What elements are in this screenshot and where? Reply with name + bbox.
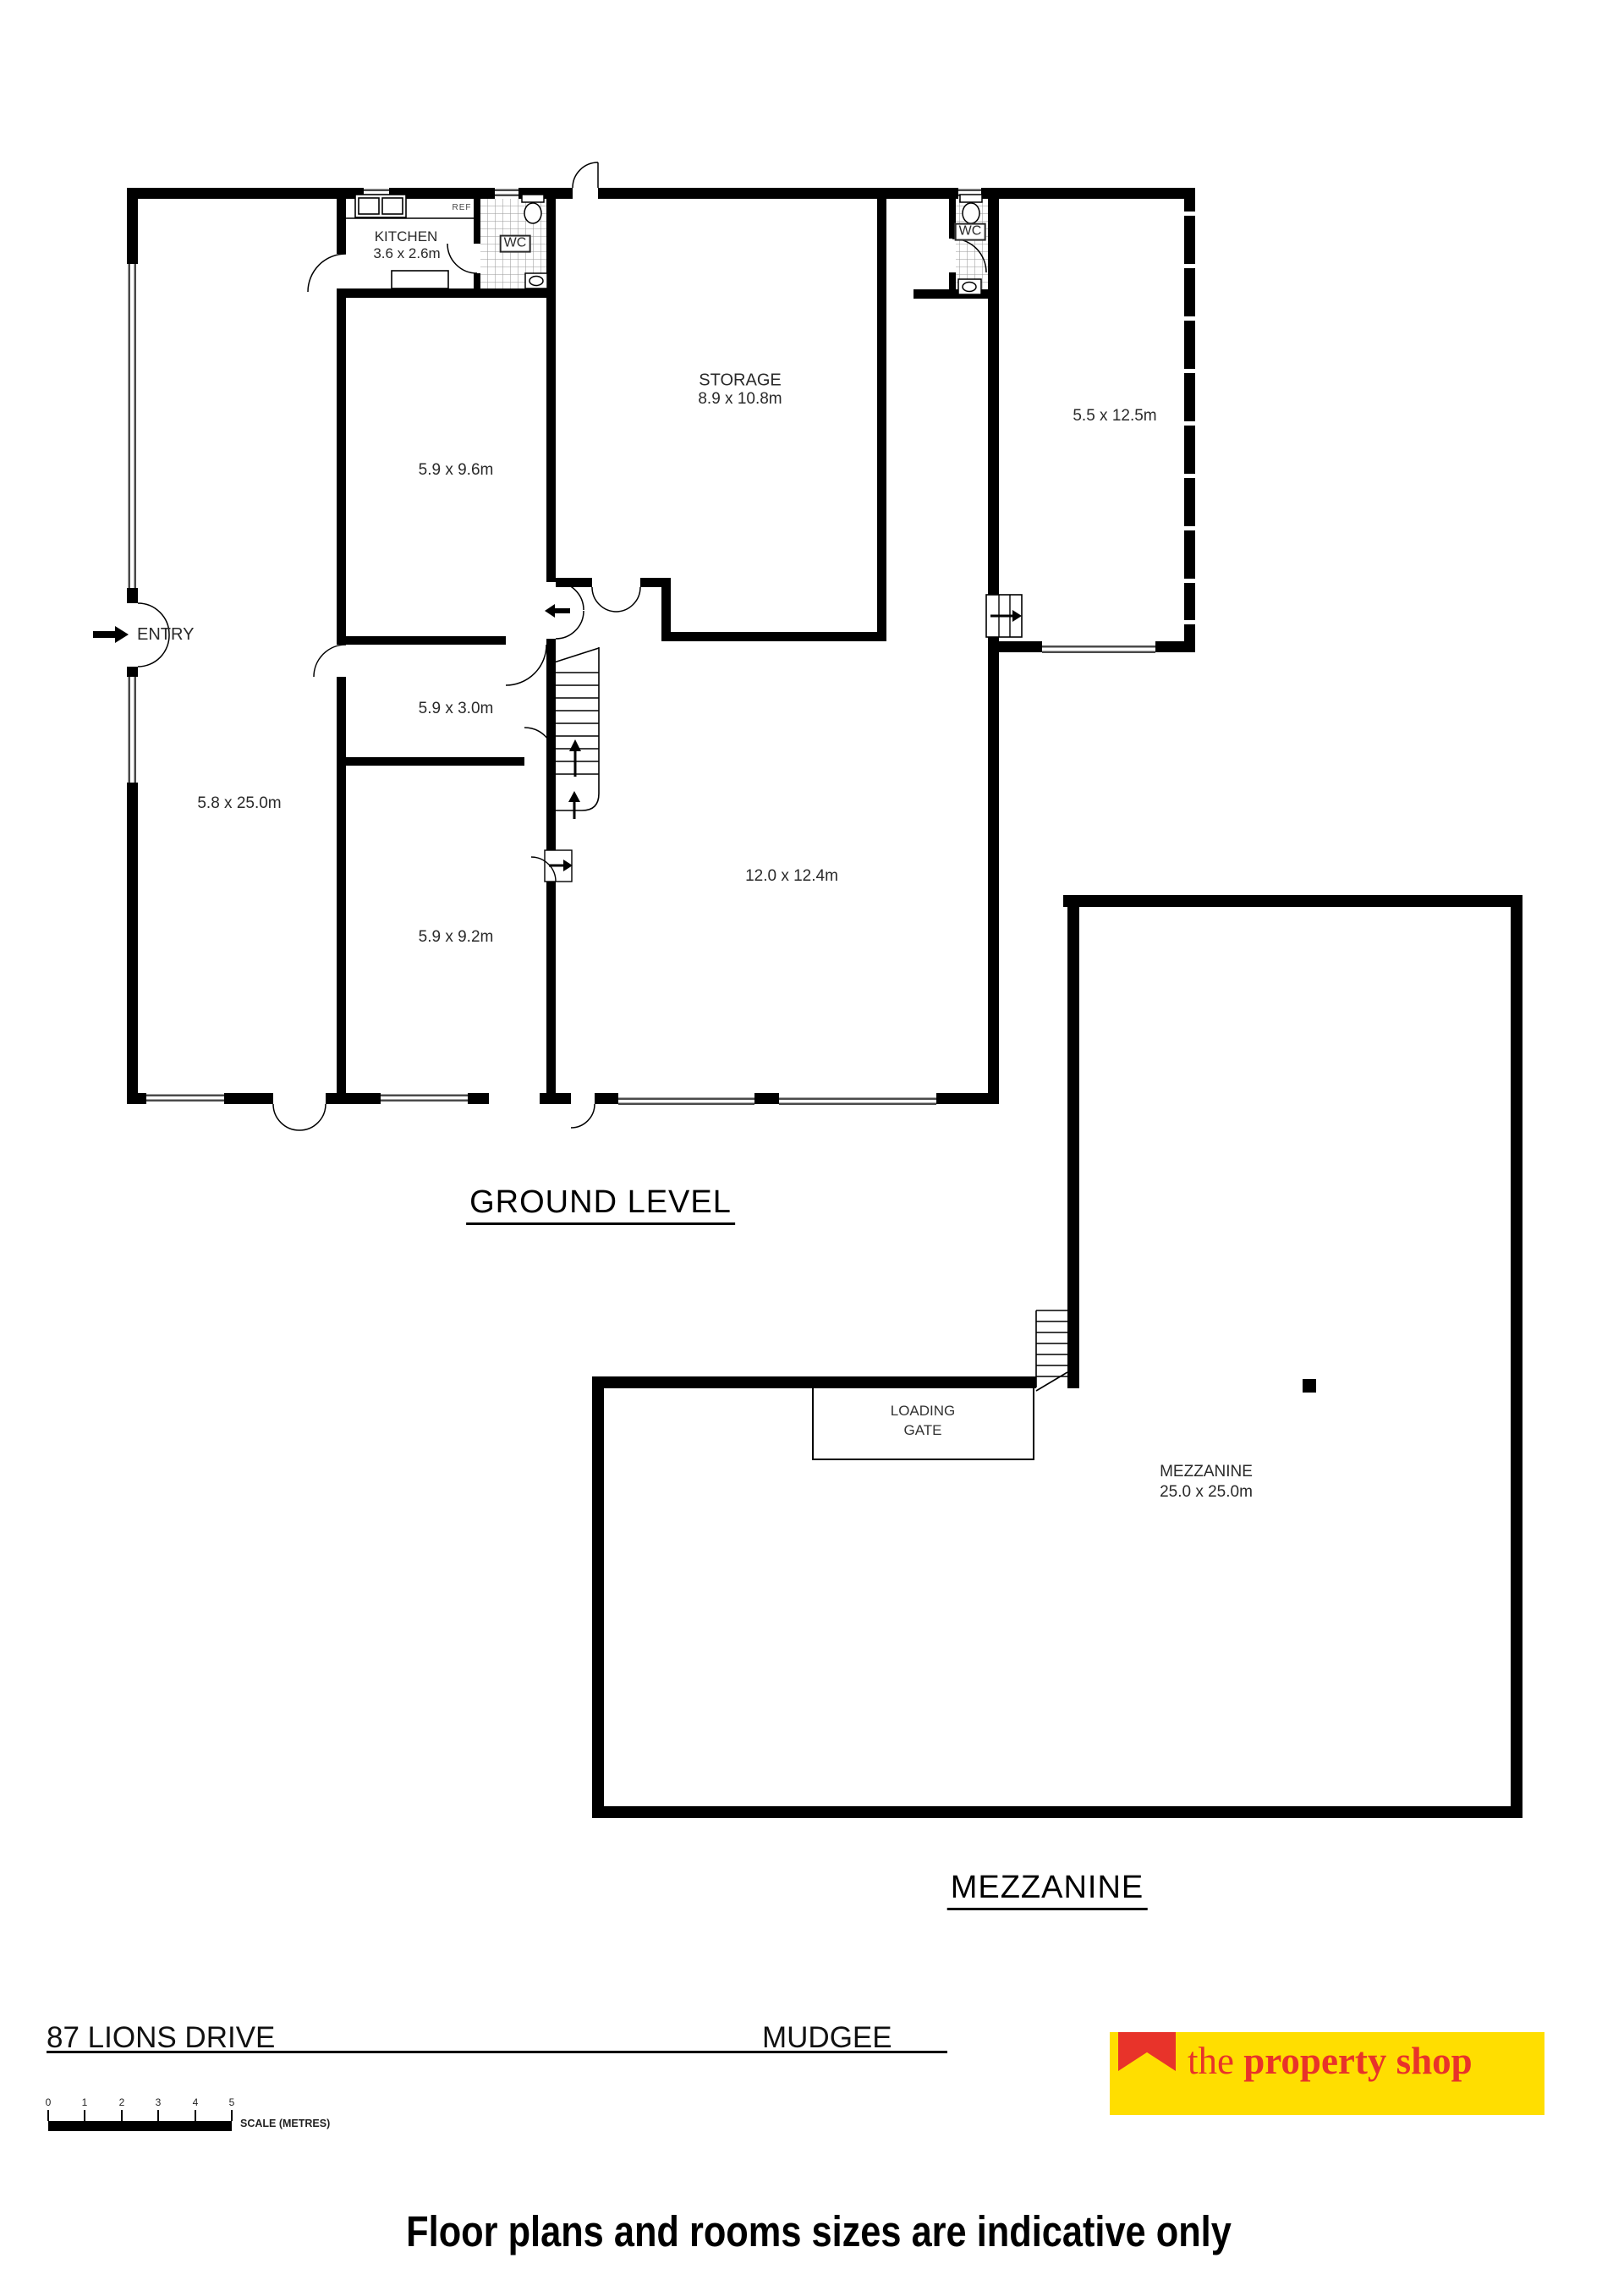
scale-number-1: 1 <box>82 2096 88 2108</box>
address-text: 87 LIONS DRIVE <box>47 2023 275 2054</box>
stairwall-door <box>531 850 573 882</box>
wc-right-label: WC <box>955 223 986 241</box>
swing-door-arrow <box>545 604 570 618</box>
footer-rule <box>47 2051 947 2053</box>
city-text: MUDGEE <box>762 2023 892 2054</box>
loading-gate-label: LOADING GATE <box>891 1402 956 1441</box>
floor-plan-drawing <box>0 0 1624 2280</box>
fridge-label: REF <box>453 204 472 213</box>
scale-tick <box>157 2110 159 2121</box>
mezzanine-plan <box>592 895 1522 1818</box>
mezzanine-walls <box>592 895 1522 1818</box>
scale-number-0: 0 <box>46 2096 52 2108</box>
mezzanine-stairs <box>1036 1310 1067 1391</box>
scale-number-4: 4 <box>193 2096 199 2108</box>
room-mid-dims: 5.9 x 3.0m <box>419 700 494 717</box>
scale-tick <box>121 2110 123 2121</box>
staircase <box>554 647 599 810</box>
scale-caption: SCALE (METRES) <box>240 2118 330 2129</box>
mezzanine-room-dims: 25.0 x 25.0m <box>1160 1484 1253 1501</box>
hall-dims: 12.0 x 12.4m <box>745 868 838 885</box>
logo-text: the property shop <box>1188 2039 1473 2083</box>
disclaimer-text: Floor plans and rooms sizes are indicati… <box>406 2206 1232 2256</box>
bookmark-ribbon-icon <box>1118 2032 1176 2071</box>
staircase-arrows <box>568 739 581 819</box>
wc-left-label: WC <box>500 235 531 253</box>
room-top-mid-dims: 5.9 x 9.6m <box>419 462 494 479</box>
room-lower-mid-dims: 5.9 x 9.2m <box>419 929 494 946</box>
wc-fixtures <box>522 195 982 294</box>
mezzanine-room-label: MEZZANINE <box>1160 1464 1253 1481</box>
scale-tick <box>195 2110 196 2121</box>
scale-tick <box>47 2110 49 2121</box>
door-arcs <box>138 162 986 1130</box>
ground-walls <box>127 188 1195 1104</box>
entry-label: ENTRY <box>137 626 194 644</box>
scale-tick <box>84 2110 85 2121</box>
ground-level-title: GROUND LEVEL <box>466 1186 735 1225</box>
mezzanine-column <box>1303 1379 1316 1393</box>
storage-label: STORAGE <box>699 372 781 390</box>
scale-tick <box>231 2110 233 2121</box>
kitchen-label: KITCHEN <box>375 229 438 244</box>
scale-number-3: 3 <box>156 2096 162 2108</box>
property-shop-logo: the property shop <box>1110 2032 1544 2115</box>
scale-number-2: 2 <box>119 2096 125 2108</box>
entry-arrow <box>93 626 129 643</box>
mezzanine-title: MEZZANINE <box>947 1871 1148 1910</box>
ground-floor-plan <box>93 162 1195 1130</box>
storage-dims: 8.9 x 10.8m <box>698 391 782 408</box>
scale-bar <box>48 2121 232 2131</box>
room-right-dims: 5.5 x 12.5m <box>1073 408 1156 425</box>
kitchen-dims: 3.6 x 2.6m <box>373 246 440 261</box>
scale-number-5: 5 <box>229 2096 235 2108</box>
floorplan-page: KITCHEN 3.6 x 2.6m REF WC WC STORAGE 8.9… <box>0 0 1624 2280</box>
room-left-dims: 5.8 x 25.0m <box>197 795 281 812</box>
steps-to-right-room <box>986 595 1022 637</box>
